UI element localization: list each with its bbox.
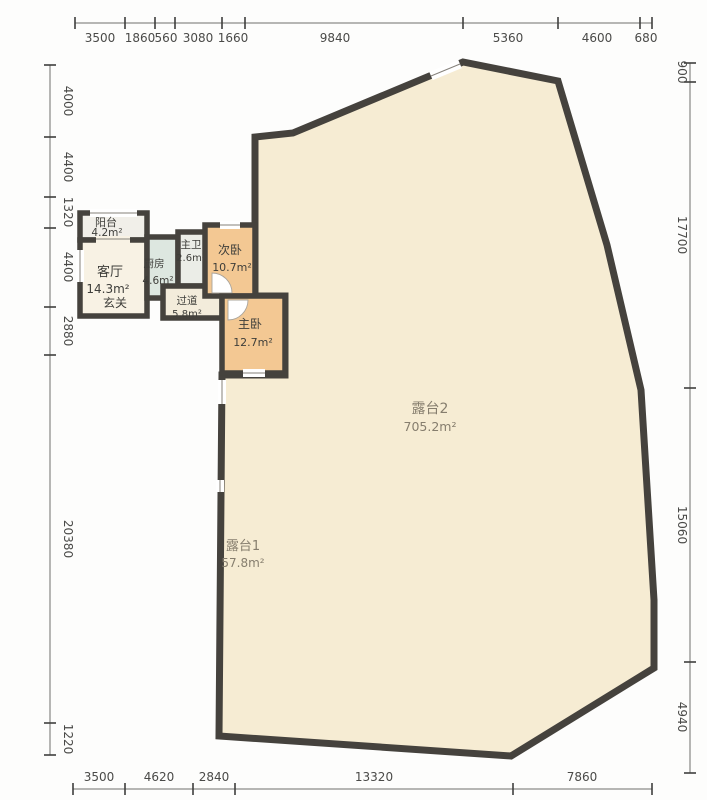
- dimension-line-bottom: 3500 4620 2840 13320 7860: [73, 770, 652, 795]
- dim-label: 680: [635, 31, 658, 45]
- terrace1-label: 露台1: [226, 539, 260, 554]
- room-master-bedroom: 主卧 12.7m²: [222, 296, 285, 377]
- dimension-line-right: 900 17700 15060 4940: [675, 61, 696, 773]
- dim-label: 5360: [493, 31, 524, 45]
- room-label: 主卧: [238, 317, 262, 331]
- room-area: 14.3m²: [86, 282, 129, 296]
- dim-label: 2880: [61, 316, 75, 347]
- dim-label: 1220: [61, 724, 75, 755]
- dim-label: 560: [155, 31, 178, 45]
- terrace2-area: 705.2m²: [404, 419, 457, 434]
- dim-label: 2840: [199, 770, 230, 784]
- dim-label: 17700: [675, 216, 689, 254]
- dimension-line-left: 4000 4400 1320 4400 2880 20380 1220: [44, 65, 75, 755]
- room-label: 厨房: [144, 257, 165, 270]
- terrace1-area: 57.8m²: [221, 556, 264, 570]
- room-area: 2.6m²: [176, 253, 206, 264]
- floor-plan-page: 3500 1860 560 3080 1660 9840 5360 4600 6…: [0, 0, 707, 800]
- room-area: 5.8m²: [172, 309, 202, 320]
- room-label: 次卧: [218, 243, 242, 257]
- dim-label: 9840: [320, 31, 351, 45]
- dim-label: 7860: [567, 770, 598, 784]
- dim-label: 3080: [183, 31, 214, 45]
- dim-label: 4400: [61, 152, 75, 183]
- dim-label: 4000: [61, 86, 75, 117]
- dim-label: 3500: [85, 31, 116, 45]
- room-living: 4.2m² 客厅 14.3m² 玄关: [76, 227, 147, 316]
- room-label: 主卫: [181, 239, 202, 251]
- room-bedroom2: 次卧 10.7m²: [205, 221, 255, 296]
- dim-label: 900: [675, 61, 689, 84]
- dim-label: 20380: [61, 520, 75, 558]
- dim-label: 4600: [582, 31, 613, 45]
- room-label: 玄关: [103, 295, 127, 310]
- room-area: 4.2m²: [91, 227, 122, 239]
- dim-label: 1320: [61, 197, 75, 228]
- dim-label: 4400: [61, 252, 75, 283]
- room-area: 10.7m²: [212, 261, 252, 274]
- dim-label: 1660: [218, 31, 249, 45]
- dim-label: 3500: [84, 770, 115, 784]
- dimension-line-top: 3500 1860 560 3080 1660 9840 5360 4600 6…: [75, 17, 657, 45]
- apartment-rooms: 阳台 4.2m² 客厅 14.3m² 玄关 厨房 4.6m² 主卫 2.6m²: [76, 209, 285, 377]
- terrace2-label: 露台2: [412, 401, 449, 417]
- room-area: 12.7m²: [233, 336, 273, 349]
- dim-label: 4620: [144, 770, 175, 784]
- dim-label: 1860: [125, 31, 156, 45]
- dim-label: 4940: [675, 702, 689, 733]
- floor-plan-canvas: 3500 1860 560 3080 1660 9840 5360 4600 6…: [0, 0, 707, 800]
- dim-label: 15060: [675, 506, 689, 544]
- room-label: 客厅: [97, 264, 123, 280]
- room-master-bath: 主卫 2.6m²: [176, 232, 206, 286]
- room-label: 过道: [177, 294, 198, 307]
- dim-label: 13320: [355, 770, 393, 784]
